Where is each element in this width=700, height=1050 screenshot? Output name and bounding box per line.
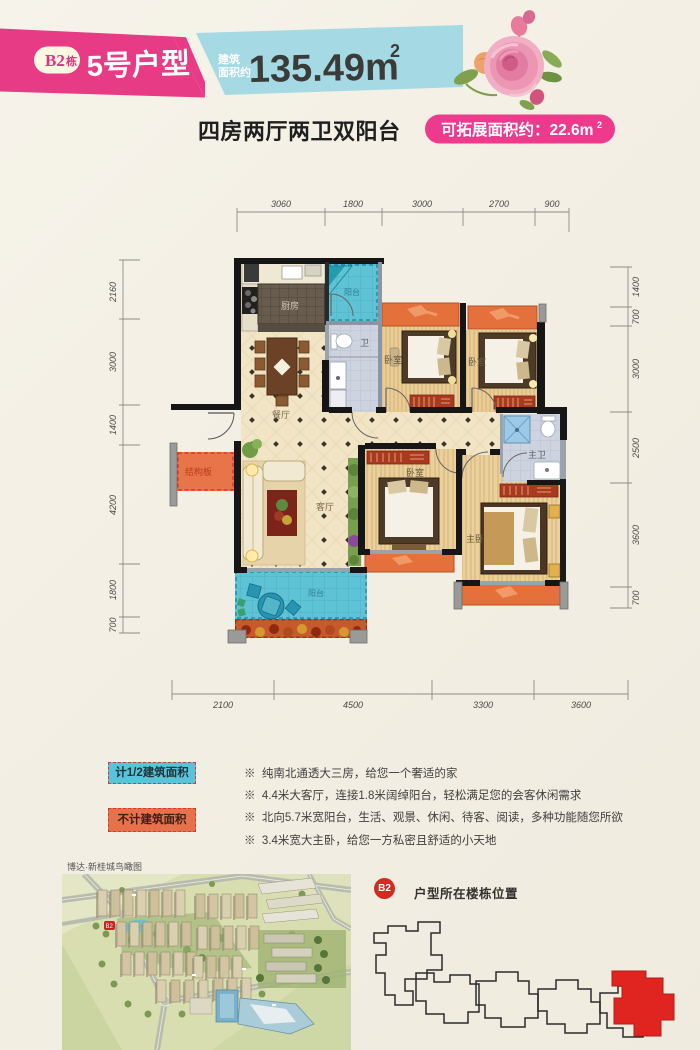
svg-text:主卧: 主卧 — [466, 533, 484, 544]
svg-text:卫: 卫 — [360, 338, 369, 348]
svg-text:1400: 1400 — [108, 415, 118, 435]
svg-text:客厅: 客厅 — [316, 501, 334, 512]
svg-text:700: 700 — [631, 309, 641, 324]
svg-text:3000: 3000 — [412, 199, 432, 209]
svg-text:2160: 2160 — [108, 282, 118, 303]
svg-text:3300: 3300 — [473, 700, 493, 710]
svg-text:2100: 2100 — [212, 700, 233, 710]
svg-text:厨房: 厨房 — [281, 300, 299, 311]
svg-text:餐厅: 餐厅 — [272, 409, 290, 420]
svg-text:阳台: 阳台 — [344, 287, 360, 297]
svg-text:2700: 2700 — [488, 199, 509, 209]
svg-text:4200: 4200 — [108, 495, 118, 515]
svg-text:主卫: 主卫 — [528, 449, 546, 460]
svg-text:1800: 1800 — [343, 199, 363, 209]
svg-text:900: 900 — [544, 199, 559, 209]
svg-text:B2: B2 — [106, 924, 114, 930]
svg-text:3600: 3600 — [571, 700, 591, 710]
svg-text:1800: 1800 — [108, 580, 118, 600]
svg-text:阳台: 阳台 — [308, 588, 324, 598]
svg-text:3600: 3600 — [631, 525, 641, 545]
svg-text:700: 700 — [108, 617, 118, 632]
svg-text:700: 700 — [631, 590, 641, 605]
svg-text:卧室: 卧室 — [406, 467, 424, 478]
svg-text:3000: 3000 — [631, 359, 641, 379]
svg-text:3000: 3000 — [108, 352, 118, 372]
svg-text:3060: 3060 — [271, 199, 291, 209]
svg-text:4500: 4500 — [343, 700, 363, 710]
svg-text:卧室: 卧室 — [384, 354, 402, 365]
svg-text:1400: 1400 — [631, 277, 641, 297]
svg-text:卧室: 卧室 — [468, 356, 486, 367]
svg-text:结构板: 结构板 — [185, 466, 212, 477]
svg-text:2500: 2500 — [631, 438, 641, 459]
